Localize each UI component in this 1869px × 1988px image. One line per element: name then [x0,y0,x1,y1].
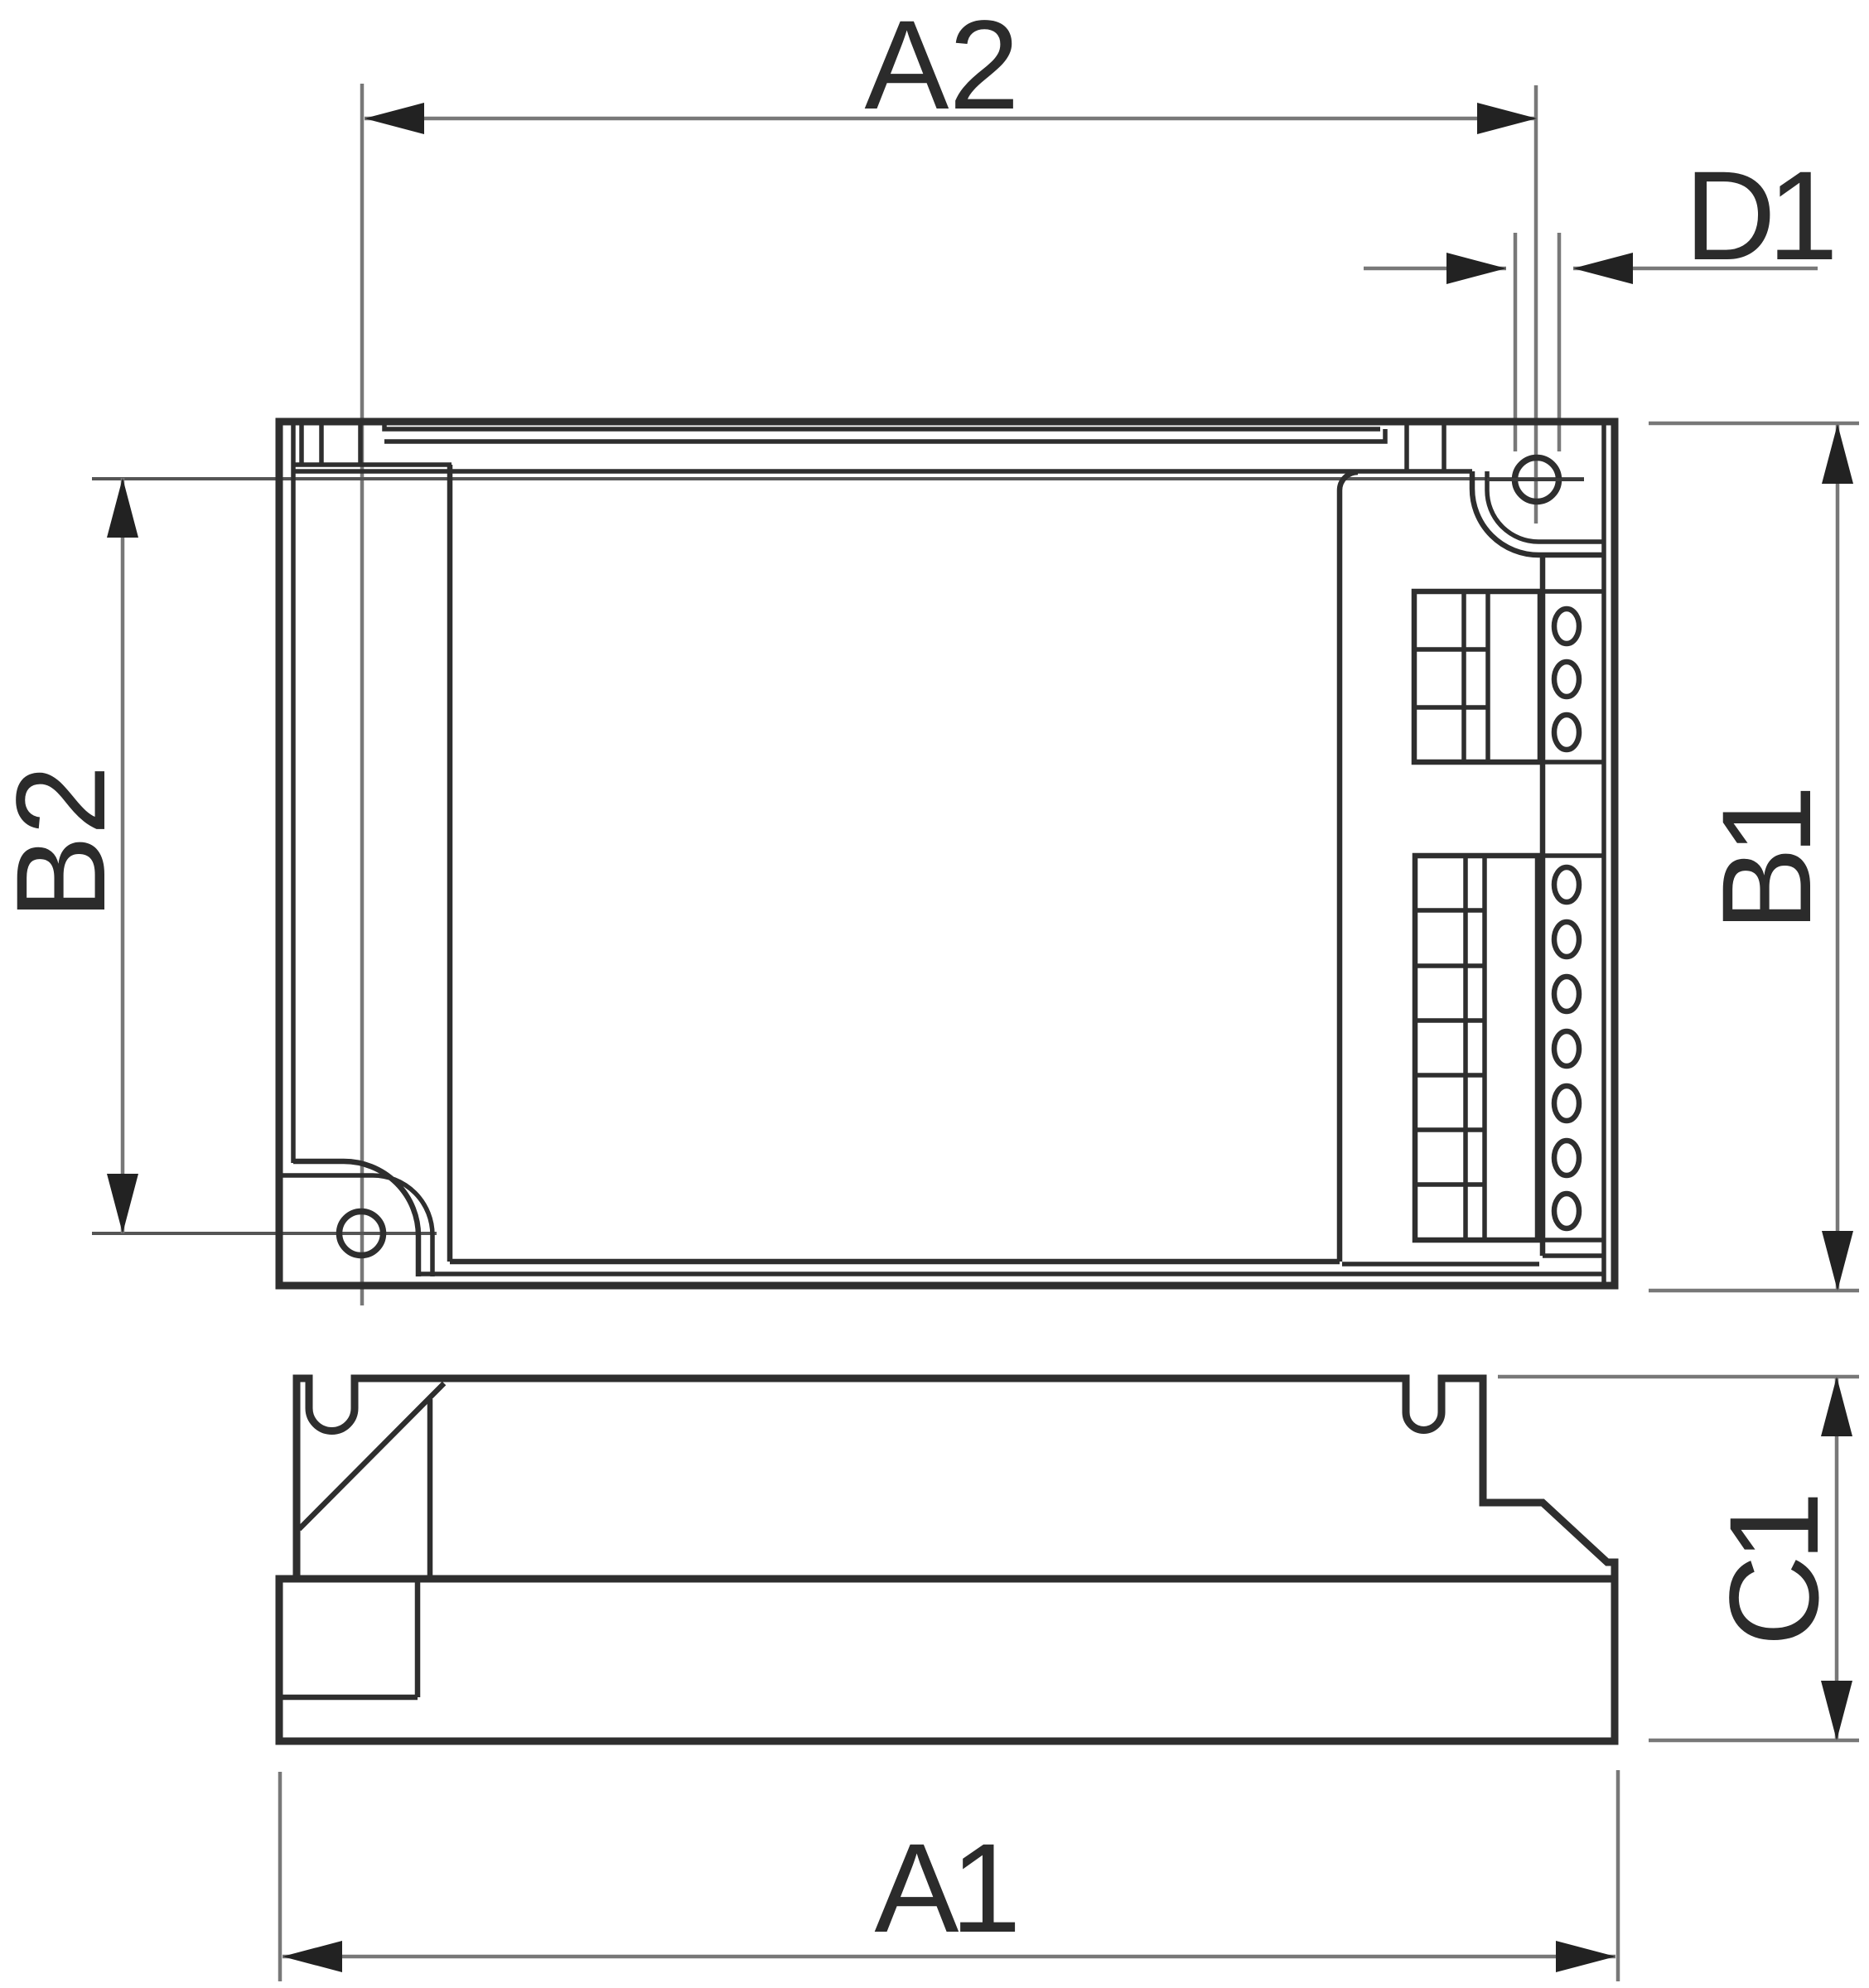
svg-text:C1: C1 [1703,1497,1845,1646]
svg-text:A1: A1 [874,1817,1015,1959]
svg-text:A2: A2 [864,0,1019,136]
svg-text:B2: B2 [0,765,132,919]
svg-text:B1: B1 [1696,791,1838,932]
svg-text:D1: D1 [1684,145,1832,287]
